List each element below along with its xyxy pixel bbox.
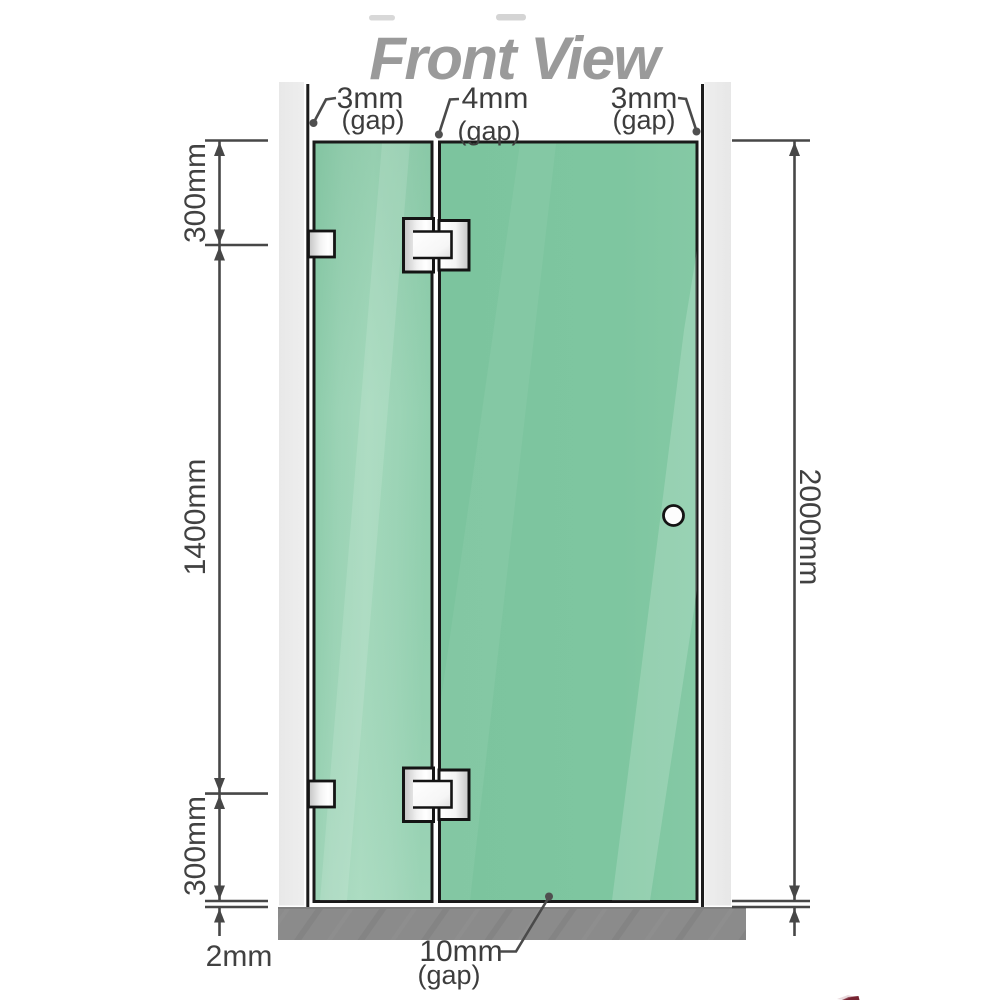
svg-text:2000mm: 2000mm <box>793 469 826 586</box>
svg-text:4mm: 4mm <box>462 82 529 115</box>
svg-text:1400mm: 1400mm <box>179 459 212 576</box>
svg-text:2mm: 2mm <box>206 940 273 973</box>
svg-text:(gap): (gap) <box>341 105 404 135</box>
svg-text:300mm: 300mm <box>179 143 212 243</box>
svg-text:300mm: 300mm <box>179 796 212 896</box>
svg-text:(gap): (gap) <box>417 960 480 990</box>
svg-text:(gap): (gap) <box>457 116 520 146</box>
svg-text:(gap): (gap) <box>612 105 675 135</box>
